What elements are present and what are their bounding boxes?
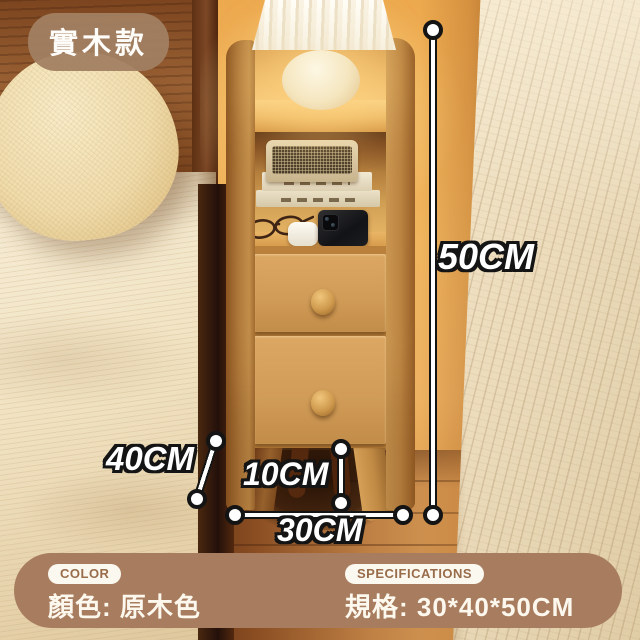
leg-height-dimension-label: 10CM bbox=[243, 456, 328, 493]
table-lamp-base bbox=[282, 50, 360, 110]
dimension-dot bbox=[393, 505, 413, 525]
spec-tag: SPECIFICATIONS bbox=[345, 564, 484, 584]
lower-drawer-knob bbox=[311, 390, 335, 416]
height-dimension-line bbox=[429, 30, 437, 515]
lower-drawer bbox=[254, 336, 386, 444]
nightstand-right-side-panel bbox=[386, 38, 415, 510]
dimension-dot bbox=[331, 493, 351, 513]
dimension-dot bbox=[423, 505, 443, 525]
spec-section: SPECIFICATIONS 規格: 30*40*50CM bbox=[345, 564, 574, 624]
smartphone bbox=[318, 210, 368, 246]
solid-wood-badge: 實木款 bbox=[28, 13, 169, 71]
info-bar: COLOR 顏色: 原木色 SPECIFICATIONS 規格: 30*40*5… bbox=[14, 553, 622, 628]
table-lamp-shade bbox=[252, 0, 396, 50]
upper-drawer bbox=[254, 254, 386, 332]
drawer-cabinet bbox=[250, 246, 390, 448]
dimension-dot bbox=[225, 505, 245, 525]
color-value: 顏色: 原木色 bbox=[48, 587, 201, 624]
width-dimension-label: 30CM bbox=[277, 512, 362, 549]
earbuds-case bbox=[288, 222, 318, 246]
dimension-dot bbox=[187, 489, 207, 509]
dimension-dot bbox=[206, 431, 226, 451]
phone-camera bbox=[322, 214, 339, 231]
dimension-dot bbox=[331, 439, 351, 459]
spec-value: 規格: 30*40*50CM bbox=[345, 587, 574, 624]
upper-drawer-knob bbox=[311, 289, 335, 315]
height-dimension-label: 50CM bbox=[438, 236, 534, 278]
color-tag: COLOR bbox=[48, 564, 121, 584]
book bbox=[256, 190, 380, 207]
nightstand-left-side-panel bbox=[226, 40, 255, 510]
radio-grille bbox=[272, 146, 352, 174]
color-section: COLOR 顏色: 原木色 bbox=[48, 564, 201, 624]
vintage-radio bbox=[266, 140, 358, 182]
depth-dimension-label: 40CM bbox=[106, 440, 194, 478]
book-spine-text bbox=[281, 198, 355, 202]
dimension-dot bbox=[423, 20, 443, 40]
product-photo: 50CM 40CM 10CM 30CM 實木款 COLOR 顏色: 原木色 SP… bbox=[0, 0, 640, 640]
